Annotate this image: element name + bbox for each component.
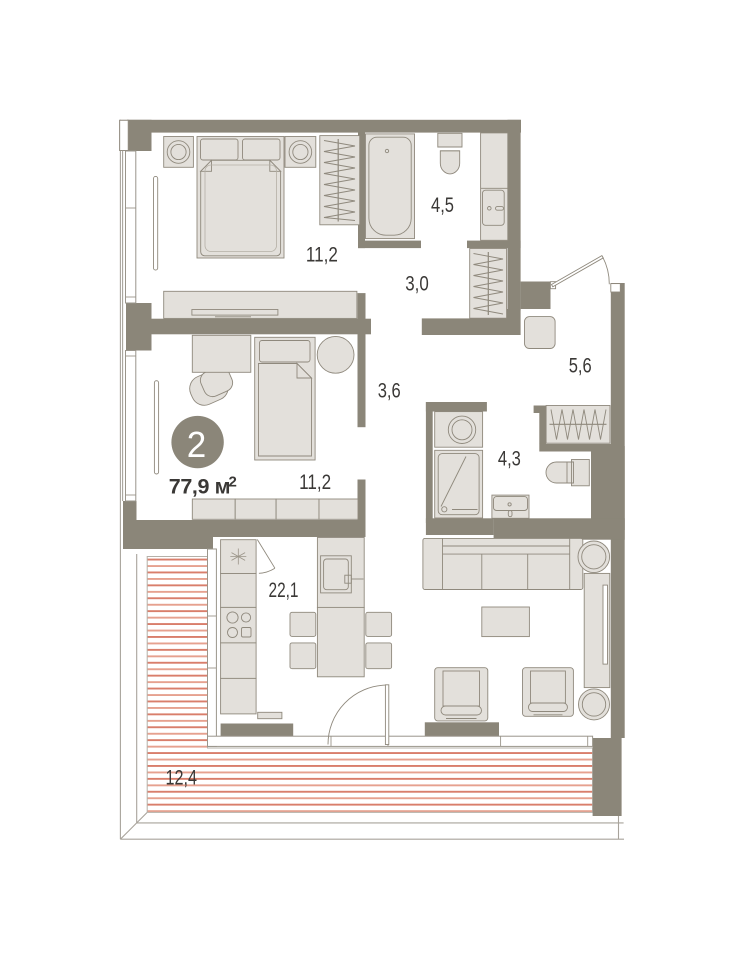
svg-text:4,5: 4,5 (431, 194, 454, 217)
svg-text:2: 2 (229, 473, 237, 490)
svg-text:2: 2 (187, 424, 207, 465)
svg-text:12,4: 12,4 (166, 767, 198, 790)
svg-text:11,2: 11,2 (306, 243, 338, 266)
svg-text:22,1: 22,1 (269, 579, 299, 602)
svg-text:3,6: 3,6 (378, 379, 401, 402)
svg-text:5,6: 5,6 (569, 355, 592, 378)
svg-text:4,3: 4,3 (498, 448, 521, 471)
svg-text:77,9 м: 77,9 м (169, 474, 230, 498)
svg-text:11,2: 11,2 (299, 471, 331, 494)
svg-text:3,0: 3,0 (405, 273, 429, 296)
